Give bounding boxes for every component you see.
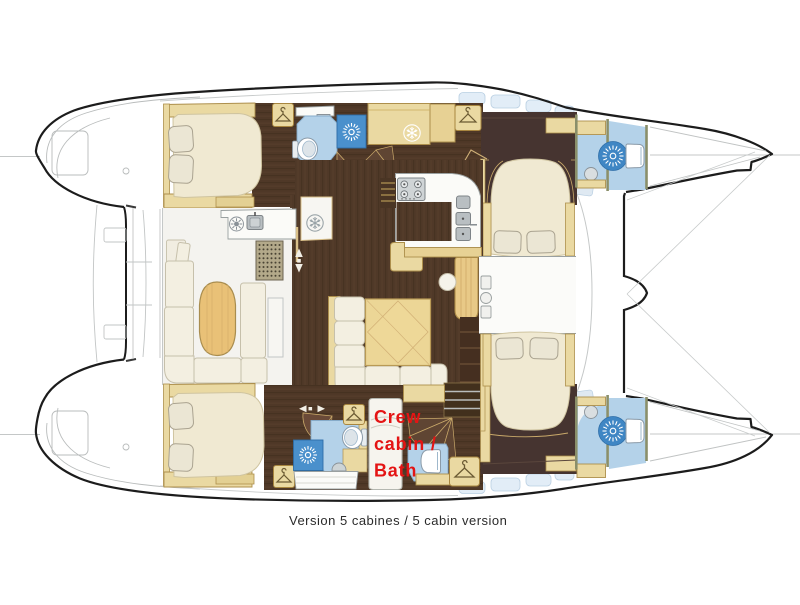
svg-text:Version 5 cabines / 5 cabin ve: Version 5 cabines / 5 cabin version [289,513,507,528]
svg-text:cabin /: cabin / [374,434,437,454]
svg-text:Crew: Crew [374,407,421,427]
svg-text:Bath: Bath [374,461,417,481]
